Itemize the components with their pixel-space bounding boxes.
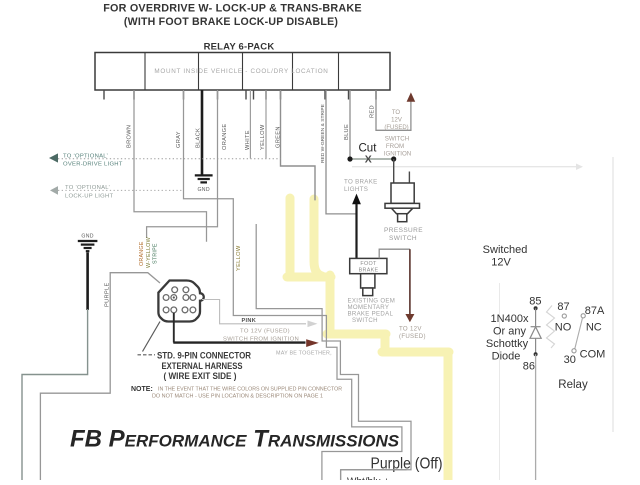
- svg-text:RELAY 6-PACK: RELAY 6-PACK: [204, 42, 275, 53]
- svg-text:X: X: [365, 153, 372, 165]
- svg-text:ORANGE: ORANGE: [222, 124, 228, 150]
- svg-text:FOOT: FOOT: [360, 261, 377, 267]
- svg-text:RED: RED: [370, 105, 376, 118]
- svg-text:RED W-GREEN & STRIPE: RED W-GREEN & STRIPE: [320, 103, 326, 163]
- svg-text:YELLOW: YELLOW: [260, 124, 266, 150]
- svg-text:86: 86: [523, 361, 535, 373]
- svg-text:YELLOW: YELLOW: [236, 245, 242, 271]
- svg-text:12V: 12V: [391, 118, 402, 124]
- svg-text:30: 30: [564, 354, 576, 366]
- svg-text:SWITCH: SWITCH: [385, 136, 409, 143]
- svg-text:EXTERNAL HARNESS: EXTERNAL HARNESS: [162, 361, 243, 371]
- svg-text:BLACK: BLACK: [196, 128, 202, 148]
- svg-text:LIGHTS: LIGHTS: [344, 186, 368, 193]
- svg-text:85: 85: [529, 296, 541, 308]
- svg-text:OVER-DRIVE LIGHT: OVER-DRIVE LIGHT: [63, 162, 123, 168]
- svg-text:SWITCH: SWITCH: [352, 317, 378, 324]
- svg-text:Or any: Or any: [493, 326, 527, 338]
- svg-text:STD. 9-PIN CONNECTOR: STD. 9-PIN CONNECTOR: [157, 351, 251, 361]
- svg-text:12V: 12V: [491, 257, 511, 269]
- svg-text:MAY BE TOGETHER,: MAY BE TOGETHER,: [276, 351, 332, 357]
- svg-text:IGNITION: IGNITION: [384, 151, 412, 158]
- svg-text:NC: NC: [586, 322, 602, 334]
- svg-text:Wht/blu +: Wht/blu +: [347, 477, 390, 481]
- svg-text:LOCK-UP LIGHT: LOCK-UP LIGHT: [65, 194, 113, 200]
- svg-text:FOR OVERDRIVE W- LOCK-UP & TR: FOR OVERDRIVE W- LOCK-UP & TRANS-BRAKE: [103, 3, 362, 15]
- svg-text:MOUNT INSIDE VEHICLE - COOL/: MOUNT INSIDE VEHICLE - COOL/DRY LOCATION: [154, 68, 328, 75]
- svg-text:Diode: Diode: [492, 351, 521, 363]
- svg-text:BROWN: BROWN: [127, 125, 133, 148]
- svg-text:1N400x: 1N400x: [491, 313, 529, 325]
- svg-text:FROM: FROM: [386, 143, 404, 150]
- svg-text:TO 12V: TO 12V: [399, 326, 422, 333]
- svg-text:( WIRE EXIT SIDE ): ( WIRE EXIT SIDE ): [164, 371, 237, 381]
- svg-text:TO ‘OPTIONAL’: TO ‘OPTIONAL’: [63, 153, 108, 159]
- svg-text:(FUSED): (FUSED): [384, 125, 408, 131]
- svg-text:ORANGE: ORANGE: [139, 241, 145, 266]
- svg-text:(FUSED): (FUSED): [399, 333, 426, 340]
- svg-text:BLUE: BLUE: [344, 124, 350, 140]
- svg-text:BRAKE: BRAKE: [359, 268, 379, 274]
- svg-text:PRESSURE: PRESSURE: [384, 227, 423, 234]
- svg-text:GREEN: GREEN: [276, 126, 282, 148]
- svg-text:COM: COM: [580, 349, 606, 361]
- svg-text:DO NOT MATCH - USE PIN LOCATIO: DO NOT MATCH - USE PIN LOCATION & DESCRI…: [152, 393, 323, 399]
- svg-text:GND: GND: [197, 187, 209, 193]
- svg-text:87A: 87A: [585, 305, 605, 317]
- svg-text:TO BRAKE: TO BRAKE: [344, 179, 378, 186]
- svg-text:Relay: Relay: [558, 379, 588, 391]
- svg-text:NOTE:: NOTE:: [131, 386, 153, 393]
- svg-text:W-YELLOW: W-YELLOW: [146, 236, 152, 268]
- svg-text:GND: GND: [81, 234, 93, 240]
- svg-text:TO ‘OPTIONAL’: TO ‘OPTIONAL’: [65, 185, 110, 191]
- svg-text:87: 87: [557, 301, 569, 313]
- svg-text:GRAY: GRAY: [176, 131, 182, 148]
- svg-text:TO 12V (FUSED): TO 12V (FUSED): [240, 329, 290, 335]
- svg-text:SWITCH: SWITCH: [389, 235, 417, 242]
- svg-text:PINK: PINK: [242, 318, 257, 324]
- svg-text:NO: NO: [555, 322, 572, 334]
- svg-text:SWITCH FROM IGNITION: SWITCH FROM IGNITION: [223, 337, 299, 343]
- svg-text:Schottky: Schottky: [486, 338, 529, 350]
- svg-text:STRIPE: STRIPE: [153, 243, 159, 264]
- svg-text:TO: TO: [392, 110, 401, 116]
- svg-text:IN THE EVENT THAT THE WIRE COL: IN THE EVENT THAT THE WIRE COLORS ON SUP…: [158, 386, 342, 392]
- svg-text:WHITE: WHITE: [245, 130, 251, 150]
- svg-text:Switched: Switched: [483, 244, 528, 256]
- svg-text:(WITH FOOT BRAKE LOCK-UP DISAB: (WITH FOOT BRAKE LOCK-UP DISABLE): [124, 16, 338, 28]
